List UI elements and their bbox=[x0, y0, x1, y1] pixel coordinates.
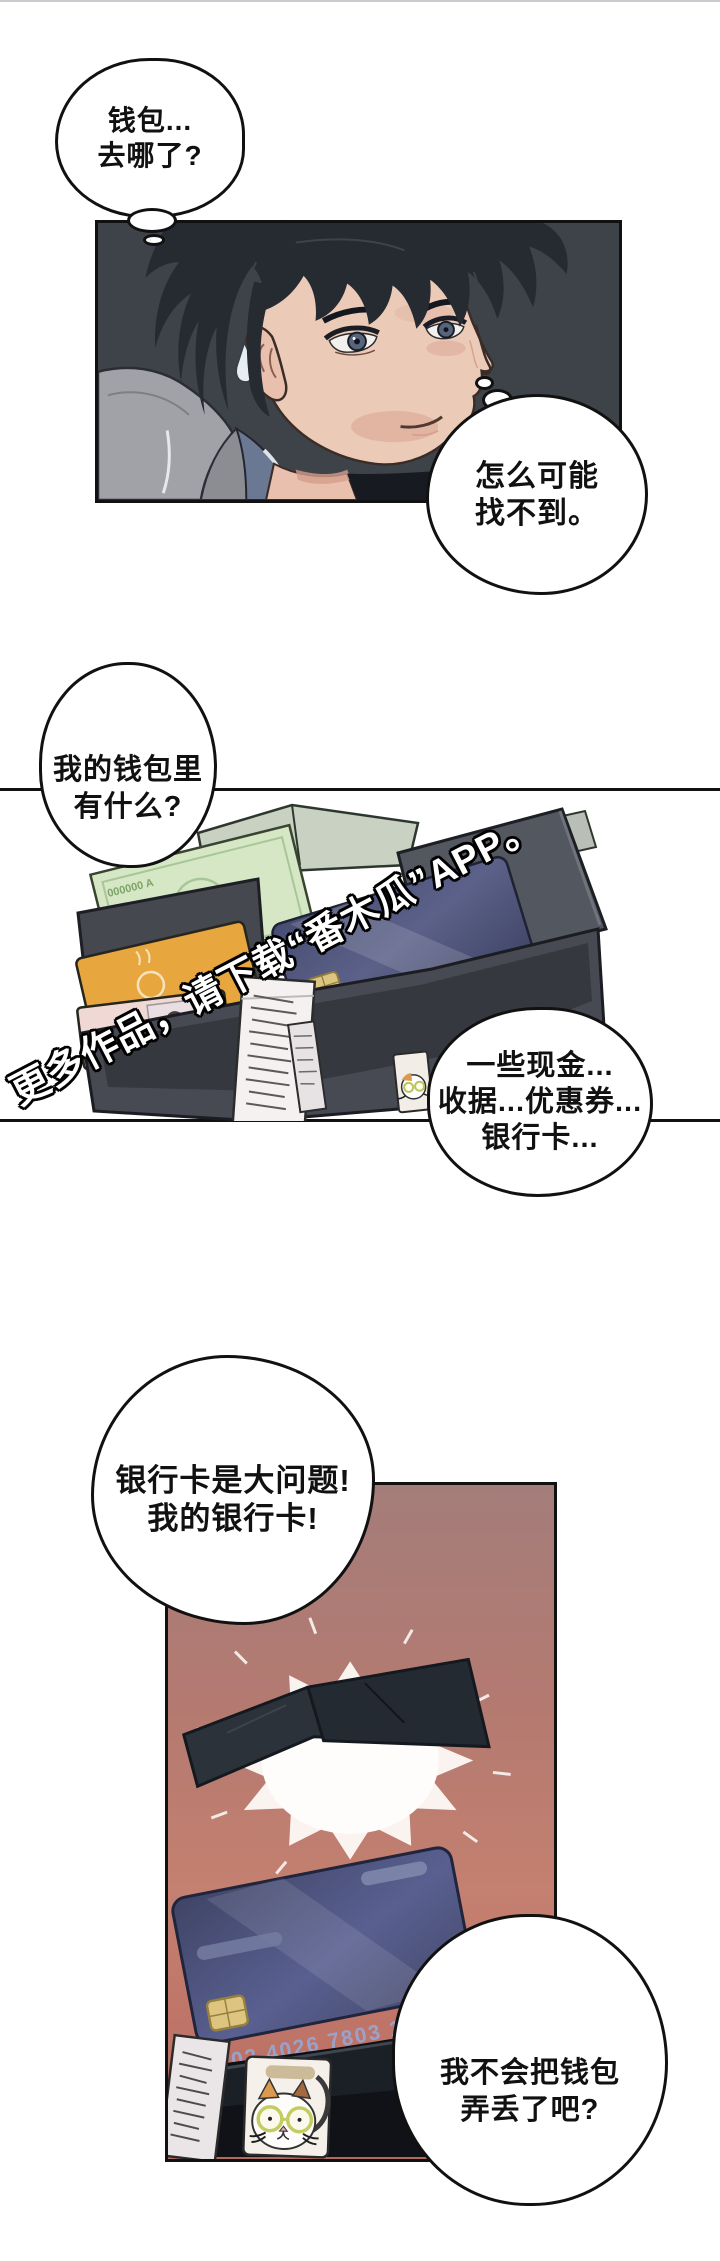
bubble-6-line-1: 我不会把钱包 bbox=[440, 2055, 620, 2092]
bubble-4-line-2: 收据...优惠券... bbox=[438, 1084, 642, 1120]
thought-trail-circle bbox=[475, 376, 494, 390]
thought-bubble-5: 银行卡是大问题! 我的银行卡! bbox=[91, 1355, 375, 1625]
bubble-5-line-1: 银行卡是大问题! bbox=[115, 1462, 350, 1500]
thought-trail-circle bbox=[143, 234, 165, 246]
bubble-5-line-2: 我的银行卡! bbox=[115, 1500, 350, 1538]
bubble-4-line-3: 银行卡... bbox=[438, 1120, 642, 1156]
bubble-2-line-1: 怎么可能 bbox=[475, 458, 599, 495]
bubble-6-line-2: 弄丢了吧? bbox=[440, 2092, 620, 2129]
bubble-1-line-1: 钱包... bbox=[97, 103, 202, 138]
bubble-4-line-1: 一些现金... bbox=[438, 1048, 642, 1084]
thought-bubble-4: 一些现金... 收据...优惠券... 银行卡... bbox=[427, 1007, 653, 1197]
thought-bubble-2: 怎么可能 找不到。 bbox=[426, 394, 648, 595]
thought-bubble-3: 我的钱包里 有什么? bbox=[39, 662, 217, 868]
bubble-1-line-2: 去哪了? bbox=[97, 138, 202, 173]
bubble-3-line-1: 我的钱包里 bbox=[53, 752, 203, 789]
thought-trail-circle bbox=[127, 208, 177, 233]
bubble-2-line-2: 找不到。 bbox=[475, 495, 599, 532]
cat-sticker bbox=[243, 2056, 331, 2157]
page-top-rule bbox=[0, 0, 720, 2]
thought-bubble-1: 钱包... 去哪了? bbox=[55, 58, 245, 218]
speech-bubble-6: 我不会把钱包 弄丢了吧? bbox=[392, 1914, 668, 2206]
comic-page: 钱包... 去哪了? bbox=[0, 0, 720, 2261]
bubble-3-line-2: 有什么? bbox=[53, 789, 203, 826]
